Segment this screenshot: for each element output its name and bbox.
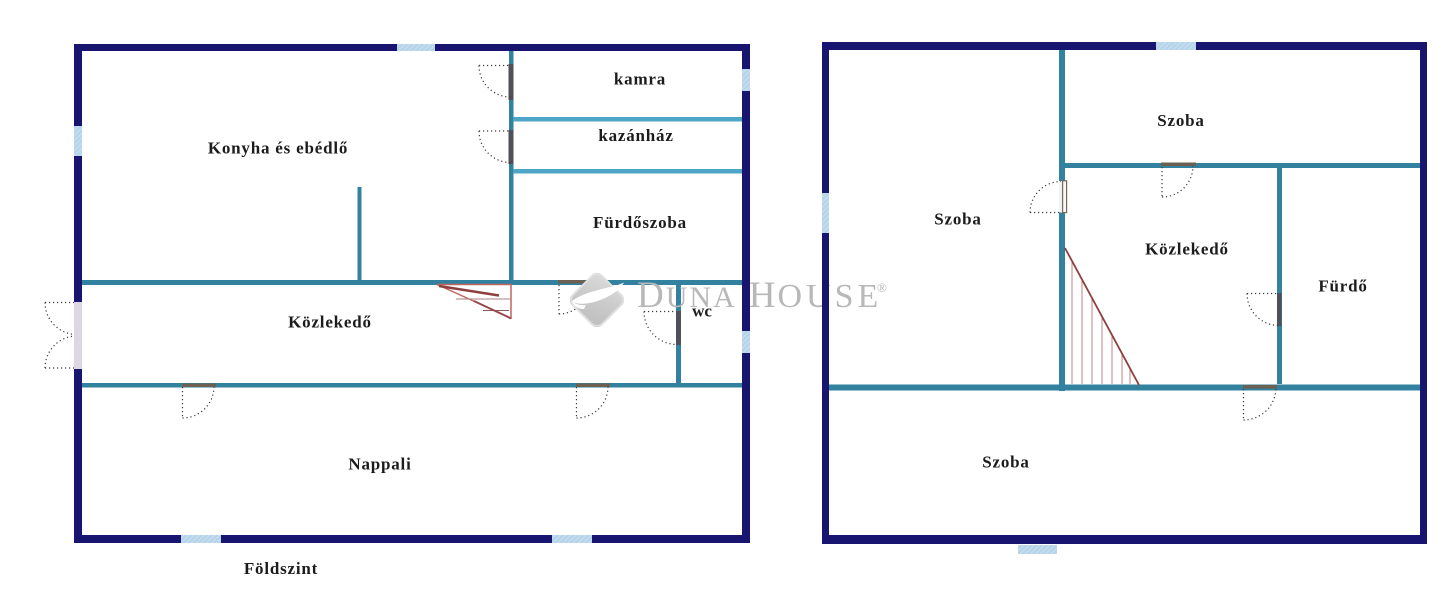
svg-text:Közlekedő: Közlekedő <box>288 313 372 332</box>
svg-text:kamra: kamra <box>614 70 666 89</box>
svg-text:Szoba: Szoba <box>1157 111 1204 130</box>
svg-text:®: ® <box>877 280 887 295</box>
svg-text:Konyha és ebédlő: Konyha és ebédlő <box>208 139 348 158</box>
svg-text:kazánház: kazánház <box>598 126 673 145</box>
svg-text:Nappali: Nappali <box>348 455 411 474</box>
svg-text:Szoba: Szoba <box>934 210 981 229</box>
svg-text:Földszint: Földszint <box>244 559 318 578</box>
svg-text:Szoba: Szoba <box>982 453 1029 472</box>
svg-text:DUNAHOUSE: DUNAHOUSE <box>637 275 882 316</box>
svg-text:Fürdőszoba: Fürdőszoba <box>593 213 687 232</box>
svg-text:Közlekedő: Közlekedő <box>1145 240 1229 259</box>
svg-text:Fürdő: Fürdő <box>1318 277 1367 296</box>
